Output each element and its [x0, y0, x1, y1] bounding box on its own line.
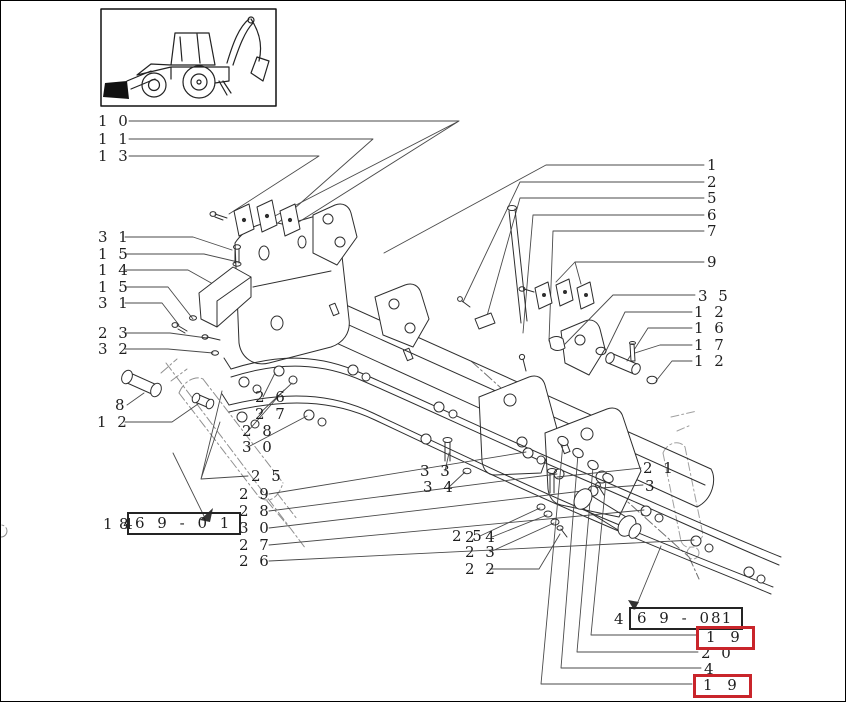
callout-21: 2 1	[643, 461, 676, 476]
machine-thumbnail	[101, 9, 276, 106]
callout-34: 3 4	[423, 480, 456, 495]
callout-17: 1 7	[694, 338, 727, 353]
callout-35: 3 5	[698, 289, 731, 304]
callout-30: 3 0	[242, 440, 275, 455]
callout-23b: 2 3	[465, 545, 498, 560]
callout-30b: 3 0	[239, 521, 272, 536]
callout-10: 1 0	[98, 114, 131, 129]
highlighted-callout-19-top: 1 9	[696, 626, 755, 650]
callout-3: 3	[645, 479, 658, 494]
parts-diagram-page: 1 0 1 1 1 3 3 1 1 5 1 4 1 5 3 1 2 3 3 2 …	[0, 0, 846, 702]
callout-28: 2 8	[242, 424, 275, 439]
callout-13: 1 3	[98, 149, 131, 164]
callout-26b: 2 6	[239, 554, 272, 569]
callout-33: 3 3	[420, 464, 453, 479]
callout-12c: 1 2	[694, 354, 727, 369]
callout-27b: 2 7	[239, 538, 272, 553]
callout-12: 1 2	[97, 415, 130, 430]
callout-31: 3 1	[98, 230, 131, 245]
callout-25: 2 5	[251, 469, 284, 484]
frame-weldment	[235, 204, 714, 517]
callout-27: 2 7	[255, 407, 288, 422]
callout-5: 5	[707, 191, 720, 206]
ref-box-left: 6 9 - 0 1	[127, 512, 241, 535]
callout-15b: 1 5	[98, 280, 131, 295]
callout-14: 1 4	[98, 263, 131, 278]
ref-right-prefix: 4	[614, 612, 627, 627]
callout-16: 1 6	[694, 321, 727, 336]
callout-11: 1 1	[98, 132, 131, 147]
callout-15: 1 5	[98, 247, 131, 262]
callout-31b: 3 1	[98, 296, 131, 311]
callout-29: 2 9	[239, 487, 272, 502]
callout-12b: 1 2	[694, 305, 727, 320]
callout-22: 2 2	[465, 562, 498, 577]
callout-7: 7	[707, 224, 720, 239]
callout-8: 8	[115, 398, 128, 413]
callout-2: 2	[707, 175, 720, 190]
callout-1: 1	[707, 158, 720, 173]
callout-6: 6	[707, 208, 720, 223]
callout-9: 9	[707, 255, 720, 270]
ref-right-suffix: 8	[711, 611, 724, 626]
callout-28b: 2 8	[239, 504, 272, 519]
highlighted-callout-19-bottom: 1 9	[693, 674, 752, 698]
callout-32: 3 2	[98, 342, 131, 357]
callout-23: 2 3	[98, 326, 131, 341]
callout-26: 2 6	[255, 390, 288, 405]
